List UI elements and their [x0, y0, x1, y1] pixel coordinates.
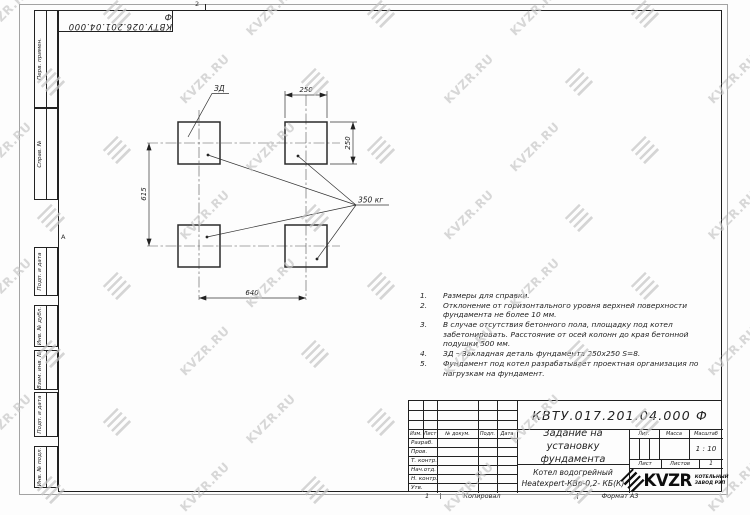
stamp-inv-dubl-label: Инв. № дубл.: [34, 305, 46, 347]
dim-pad-width: 250: [299, 86, 313, 94]
sheets-total: 1: [699, 459, 723, 468]
note-item: 1.Размеры для справки.: [420, 291, 716, 300]
note-number: 3.: [420, 320, 434, 348]
dim-col-spacing: 640: [245, 289, 259, 297]
note-item: 3.В случае отсутствия бетонного пола, пл…: [420, 320, 716, 348]
stamp-divider: [46, 10, 47, 108]
dim-pad-height: 250: [344, 136, 352, 150]
note-text: В случае отсутствия бетонного пола, площ…: [443, 320, 716, 348]
document-title: Задание на установку фундамента: [517, 429, 629, 464]
row-razrab: Разраб.: [411, 438, 437, 447]
stamp-inv-podl-label: Инв. № подл.: [34, 446, 46, 488]
row-utv: Утв.: [411, 483, 437, 492]
note-number: 2.: [420, 301, 434, 320]
col-masshtab: Масштаб: [689, 429, 723, 438]
stamp-divider: [46, 392, 47, 437]
stamp-divider: [46, 108, 47, 200]
note-item: 2.Отклонение от горизонтального уровня в…: [420, 301, 716, 320]
detail-label: ЗД: [214, 84, 225, 93]
note-text: Фундамент под котел разрабатывает проект…: [443, 359, 716, 378]
product-name: Котел водогрейный Heatexpert-КВр-0,2- КБ…: [517, 464, 629, 493]
product-line2: Heatexpert-КВр-0,2- КБ(К): [522, 479, 625, 490]
stamp-divider: [46, 446, 47, 488]
stamp-sprav-no-label: Справ. №: [34, 108, 46, 200]
col-lit: Лит.: [629, 429, 659, 438]
fold-tick: [577, 493, 578, 499]
note-text: Отклонение от горизонтального уровня вер…: [443, 301, 716, 320]
stamp-divider: [46, 350, 47, 390]
row-t-kontr: Т. контр.: [411, 456, 437, 465]
note-text: ЗД – Закладная деталь фундамента 250х250…: [443, 349, 716, 358]
col-data: Дата: [497, 429, 517, 438]
zone-marker-left: А: [61, 233, 65, 241]
label-list: Лист: [629, 459, 661, 468]
footer-copied: Копировал: [452, 492, 512, 500]
tagline-line1: КОТЕЛЬНЫЙ: [695, 475, 729, 481]
detail-leader-line: [188, 94, 229, 138]
foundation-drawing: 250 250 615 640 ЗД 350 кг: [140, 78, 400, 308]
kvzr-logo-text: KVZR: [644, 471, 692, 490]
fold-tick: [440, 493, 441, 499]
zone-marker-bottom: 1: [425, 492, 429, 500]
product-line1: Котел водогрейный: [533, 468, 613, 479]
zone-marker-top: 2: [195, 0, 199, 8]
stamp-perv-primen-label: Перв. примен.: [34, 10, 46, 108]
stamp-podp-data-1-label: Подп. и дата: [34, 247, 46, 296]
load-label: 350 кг: [358, 196, 383, 205]
col-podp: Подп.: [478, 429, 497, 438]
zone-tick-top: [205, 4, 206, 11]
footer-format: Формат А3: [588, 492, 652, 500]
stamp-podp-data-2-label: Подп. и дата: [34, 392, 46, 437]
col-list: Лист: [423, 429, 437, 438]
notes-list: 1.Размеры для справки. 2.Отклонение от г…: [420, 291, 716, 379]
row-nach-otd: Нач.отд.: [411, 465, 437, 474]
tagline-line2: ЗАВОД РЭП: [695, 481, 729, 487]
stamp-divider: [46, 247, 47, 296]
col-massa: Масса: [659, 429, 689, 438]
note-number: 1.: [420, 291, 434, 300]
note-text: Размеры для справки.: [443, 291, 716, 300]
stamp-divider: [46, 305, 47, 347]
row-n-kontr: Н. контр.: [411, 474, 437, 483]
doc-number: КВТУ.017.201.04.000 Ф: [517, 401, 723, 429]
note-number: 5.: [420, 359, 434, 378]
drawing-sheet: { "sheet": { "corner_stamp": "КВТУ.026.2…: [0, 0, 750, 500]
label-listov: Листов: [661, 459, 699, 468]
stamp-vzam-inv-label: Взам. инв. №: [34, 350, 46, 390]
kvzr-logo-tagline: КОТЕЛЬНЫЙ ЗАВОД РЭП: [695, 475, 729, 487]
note-item: 4.ЗД – Закладная деталь фундамента 250х2…: [420, 349, 716, 358]
company-logo: KVZR КОТЕЛЬНЫЙ ЗАВОД РЭП: [629, 468, 723, 493]
title-block: КВТУ.017.201.04.000 Ф Изм. Лист № докум.…: [408, 400, 722, 492]
col-n-dokum: № докум.: [437, 429, 478, 438]
corner-stamp-box: КВТУ.026.201.04.000 Ф: [58, 10, 173, 32]
note-item: 5.Фундамент под котел разрабатывает прое…: [420, 359, 716, 378]
note-number: 4.: [420, 349, 434, 358]
load-leader-lines: [207, 155, 389, 259]
row-prov: Пров.: [411, 447, 437, 456]
scale-value: 1 : 10: [689, 438, 723, 459]
corner-stamp-number: КВТУ.026.201.04.000 Ф: [59, 11, 172, 31]
dim-row-spacing: 615: [140, 187, 148, 201]
col-izm: Изм.: [409, 429, 423, 438]
